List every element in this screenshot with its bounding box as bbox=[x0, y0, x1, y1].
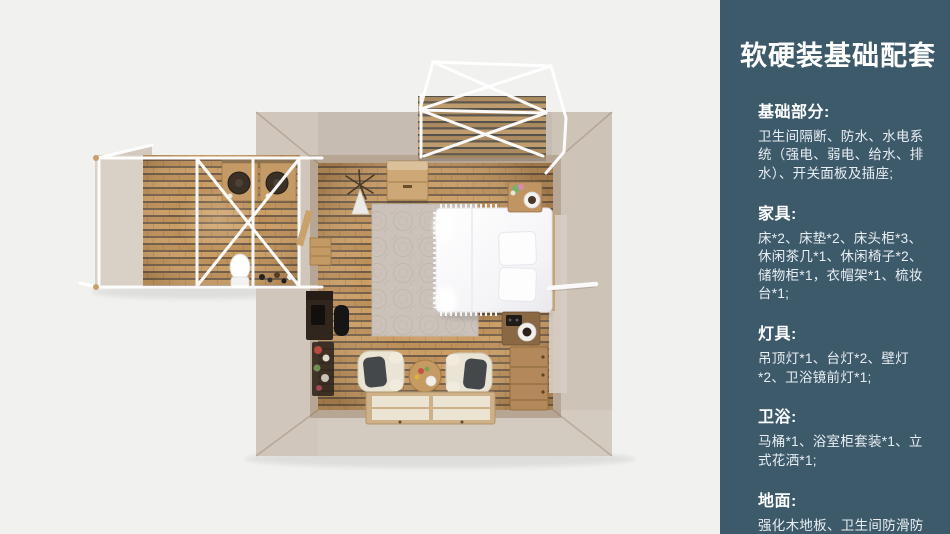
fur-throw bbox=[435, 287, 457, 313]
spec-heading: 卫浴: bbox=[758, 403, 930, 427]
nightstand-bottom bbox=[502, 312, 540, 345]
spec-section-flooring: 地面: 强化木地板、卫生间防滑防潮石塑板; bbox=[758, 487, 930, 534]
spec-body: 强化木地板、卫生间防滑防潮石塑板; bbox=[758, 517, 930, 534]
bathroom-entry-deck bbox=[95, 155, 145, 288]
office-chair bbox=[334, 305, 349, 336]
spec-section-bathroom: 卫浴: 马桶*1、浴室柜套装*1、立式花洒*1; bbox=[758, 403, 930, 470]
tatami-platform bbox=[366, 392, 495, 424]
drawer-chest bbox=[510, 347, 548, 410]
floorplan-render bbox=[0, 0, 720, 534]
bed bbox=[434, 206, 555, 321]
spec-section-furniture: 家具: 床*2、床垫*2、床头柜*3、休闲茶几*1、休闲椅子*2、储物柜*1，衣… bbox=[758, 200, 930, 305]
spec-body: 吊顶灯*1、台灯*2、壁灯*2、卫浴镜前灯*1; bbox=[758, 350, 930, 387]
spec-heading: 基础部分: bbox=[758, 98, 930, 122]
desk bbox=[306, 291, 333, 340]
desk-monitor bbox=[311, 305, 325, 325]
spec-body: 卫生间隔断、防水、水电系统（强电、弱电、给水、排水）、开关面板及插座; bbox=[758, 128, 930, 184]
spec-panel: 软硬装基础配套 基础部分: 卫生间隔断、防水、水电系统（强电、弱电、给水、排水）… bbox=[720, 0, 950, 534]
fur-throw bbox=[434, 211, 452, 241]
frame-dowel bbox=[93, 284, 99, 290]
nightstand-top bbox=[508, 182, 542, 212]
slide: 软硬装基础配套 基础部分: 卫生间隔断、防水、水电系统（强电、弱电、给水、排水）… bbox=[0, 0, 950, 534]
spec-heading: 家具: bbox=[758, 200, 930, 224]
plant-stand bbox=[312, 342, 334, 396]
toilet bbox=[230, 254, 250, 288]
coffee-table bbox=[409, 360, 441, 396]
storage-cabinet bbox=[387, 161, 428, 205]
pillow bbox=[498, 267, 536, 301]
bathroom-annex bbox=[80, 144, 322, 290]
spec-body: 马桶*1、浴室柜套装*1、立式花洒*1; bbox=[758, 433, 930, 470]
pillow bbox=[498, 231, 536, 265]
spec-heading: 地面: bbox=[758, 487, 930, 511]
spec-heading: 灯具: bbox=[758, 320, 930, 344]
armchair-right bbox=[446, 353, 492, 397]
teapot bbox=[426, 376, 436, 386]
panel-title: 软硬装基础配套 bbox=[740, 42, 930, 72]
frame-dowel bbox=[93, 155, 99, 161]
spec-section-basics: 基础部分: 卫生间隔断、防水、水电系统（强电、弱电、给水、排水）、开关面板及插座… bbox=[758, 98, 930, 184]
spec-body: 床*2、床垫*2、床头柜*3、休闲茶几*1、休闲椅子*2、储物柜*1，衣帽架*1… bbox=[758, 230, 930, 305]
spec-section-lighting: 灯具: 吊顶灯*1、台灯*2、壁灯*2、卫浴镜前灯*1; bbox=[758, 320, 930, 387]
floorplan-svg bbox=[0, 0, 720, 534]
armchair-left bbox=[358, 351, 404, 396]
